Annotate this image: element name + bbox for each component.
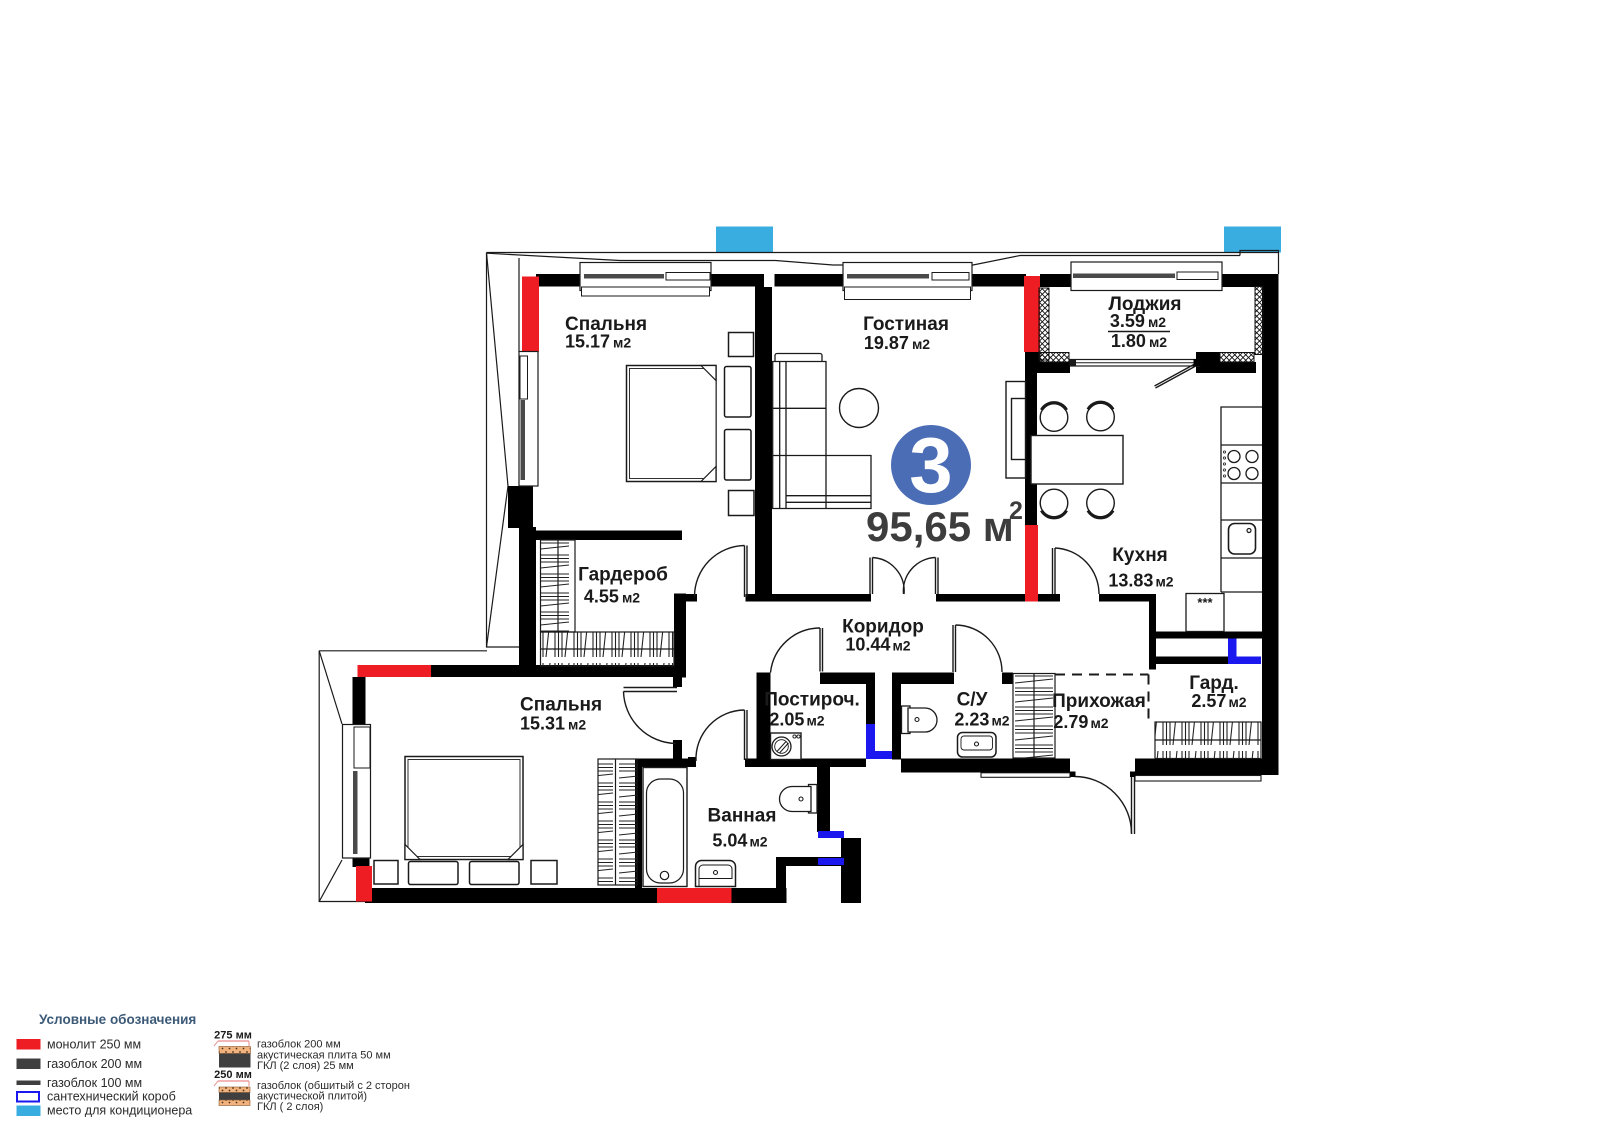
svg-text:10.44м2: 10.44м2 [845, 635, 910, 655]
svg-text:2.57м2: 2.57м2 [1191, 691, 1246, 711]
svg-text:Кухня: Кухня [1112, 545, 1168, 566]
svg-text:ГКЛ ( 2 слоя): ГКЛ ( 2 слоя) [257, 1101, 323, 1113]
svg-text:С/У: С/У [957, 690, 988, 711]
svg-text:250 мм: 250 мм [214, 1069, 252, 1081]
svg-text:Условные обозначения: Условные обозначения [39, 1012, 196, 1027]
svg-text:3: 3 [909, 421, 952, 509]
svg-text:275 мм: 275 мм [214, 1030, 252, 1042]
svg-text:2.23м2: 2.23м2 [954, 710, 1009, 730]
svg-text:монолит 250 мм: монолит 250 мм [47, 1038, 141, 1052]
svg-text:Гостиная: Гостиная [863, 314, 949, 335]
svg-text:Гардероб: Гардероб [578, 565, 668, 586]
svg-text:13.83м2: 13.83м2 [1108, 571, 1173, 591]
svg-text:газоблок 100 мм: газоблок 100 мм [47, 1076, 142, 1090]
svg-text:сантехнический короб: сантехнический короб [47, 1090, 176, 1104]
svg-text:2.79м2: 2.79м2 [1053, 712, 1108, 732]
svg-text:5.04м2: 5.04м2 [712, 831, 767, 851]
svg-text:2.05м2: 2.05м2 [769, 710, 824, 730]
svg-text:95,65 м: 95,65 м [866, 503, 1014, 550]
svg-text:15.31м2: 15.31м2 [520, 714, 586, 734]
svg-text:15.17м2: 15.17м2 [565, 332, 631, 352]
svg-text:1.80м2: 1.80м2 [1111, 331, 1167, 351]
svg-text:4.55м2: 4.55м2 [584, 587, 640, 607]
svg-text:Ванная: Ванная [708, 806, 777, 827]
svg-text:газоблок 200 мм: газоблок 200 мм [47, 1057, 142, 1071]
svg-text:Спальня: Спальня [520, 695, 602, 716]
svg-text:место для кондиционера: место для кондиционера [47, 1104, 192, 1118]
svg-text:ГКЛ (2 слоя) 25 мм: ГКЛ (2 слоя) 25 мм [257, 1060, 354, 1072]
svg-text:Постироч.: Постироч. [764, 690, 860, 711]
svg-text:2: 2 [1009, 497, 1023, 525]
svg-text:19.87м2: 19.87м2 [864, 333, 930, 353]
svg-text:3.59м2: 3.59м2 [1110, 311, 1166, 331]
svg-text:Прихожая: Прихожая [1052, 691, 1146, 712]
svg-text:***: *** [1197, 595, 1213, 610]
